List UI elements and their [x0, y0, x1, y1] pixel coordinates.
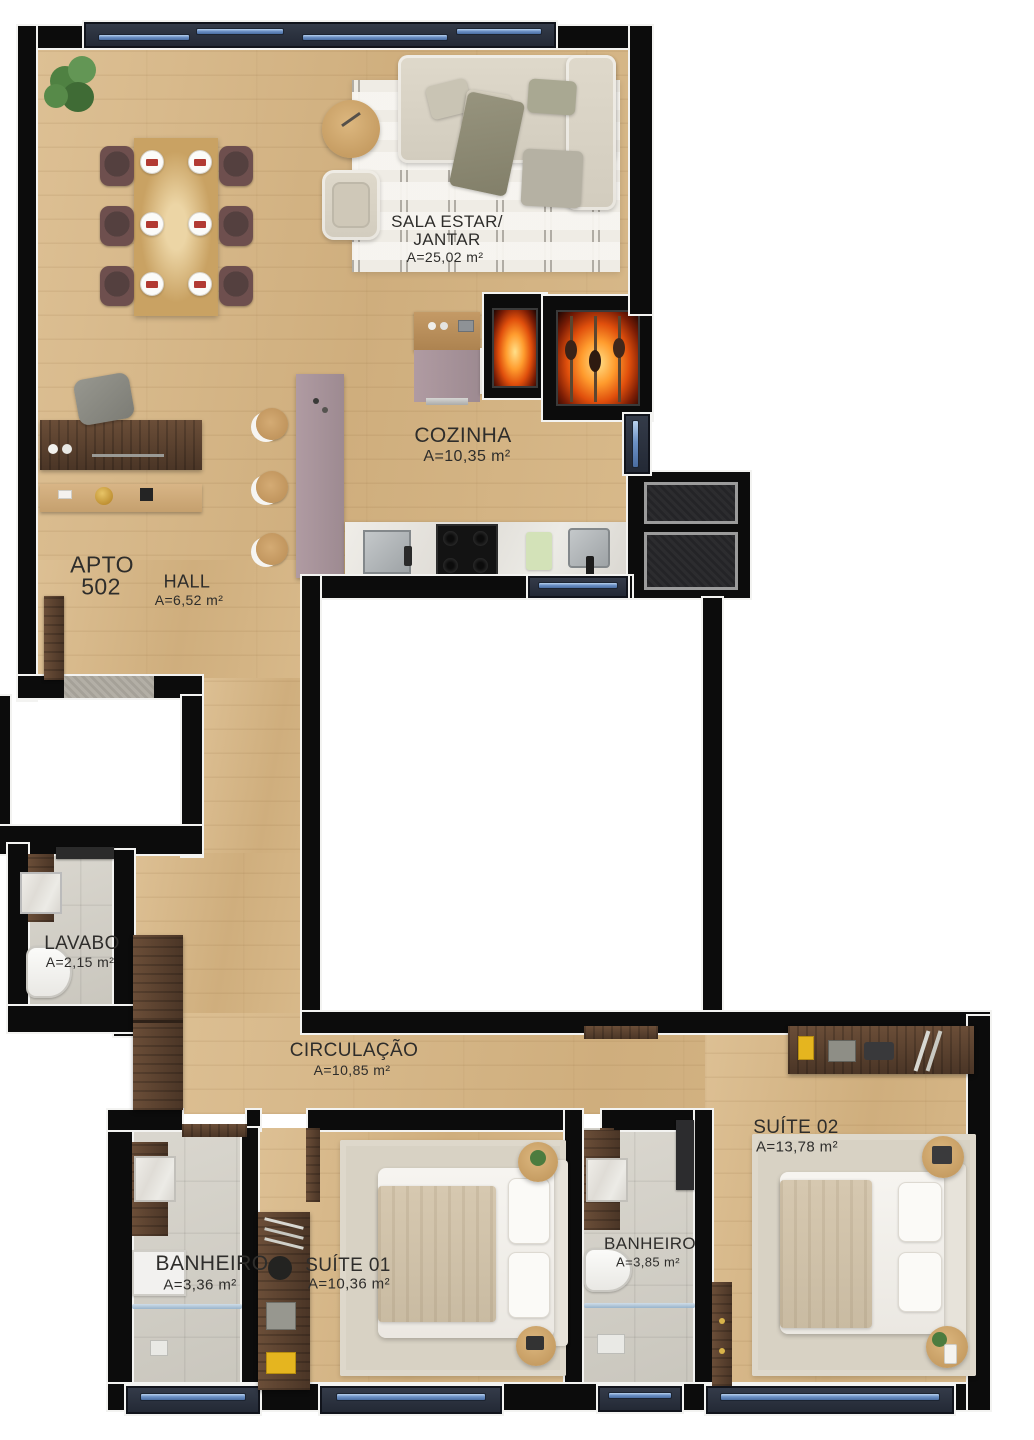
suite2-blanket [780, 1180, 872, 1328]
fireplace-fire [492, 308, 538, 388]
entry-doormat [64, 676, 154, 698]
place-setting [188, 150, 212, 174]
banheiro2-sink [586, 1158, 628, 1202]
room-area-sala: A=25,02 m² [407, 249, 484, 265]
desk-chair [72, 371, 135, 426]
gold-bowl [95, 487, 113, 505]
window-glass [196, 28, 284, 35]
wardrobe-box [266, 1302, 296, 1330]
room-area-suite2: A=13,78 m² [756, 1139, 838, 1156]
dining-chair [100, 266, 134, 306]
floor-plan: SALA ESTAR/ JANTAR A=25,02 m² COZINHA A=… [0, 0, 1034, 1440]
sofa-pillow [527, 78, 577, 115]
place-setting [140, 150, 164, 174]
wall [302, 576, 320, 1032]
cabinet-divider [133, 1020, 183, 1023]
kitchen-cabinet-top [414, 312, 480, 352]
place-setting [140, 272, 164, 296]
shelf-camera [864, 1042, 894, 1060]
window-glass [140, 1393, 246, 1401]
desk-cup [62, 444, 72, 454]
room-label-hall: HALL [164, 572, 211, 593]
nightstand-phone [944, 1344, 957, 1364]
window-glass [98, 34, 190, 41]
window-glass [456, 28, 542, 35]
nightstand-book [526, 1336, 544, 1350]
room-area-hall: A=6,52 m² [155, 592, 224, 608]
suite1-pillow [508, 1178, 550, 1244]
room-label-banheiro2: BANHEIRO [604, 1234, 696, 1254]
shaker [428, 322, 436, 330]
desk-cup [48, 444, 58, 454]
bar-stool [256, 533, 288, 565]
appliance-panel [644, 482, 738, 524]
grill-meat [589, 350, 601, 372]
window-glass [336, 1393, 486, 1401]
bar-stool [256, 471, 288, 503]
dining-chair [100, 146, 134, 186]
grill-meat [613, 338, 625, 358]
grill-meat [565, 340, 577, 360]
banheiro2-window [598, 1386, 682, 1412]
shower-column [676, 1120, 694, 1190]
island-decor [313, 398, 319, 404]
wall [247, 1110, 260, 1130]
shelf-box [828, 1040, 856, 1062]
room-label-sala: SALA ESTAR/ [391, 212, 503, 232]
place-setting [140, 212, 164, 236]
suite2-slim-cabinet [712, 1282, 732, 1386]
burner [473, 558, 488, 573]
counter-faucet [586, 556, 594, 578]
sideboard-frame [140, 488, 153, 501]
cabinet-knob [719, 1318, 725, 1324]
window-glass [302, 34, 448, 41]
shower-glass [132, 1304, 242, 1309]
room-area-circulacao: A=10,85 m² [314, 1062, 391, 1078]
lavabo-shelf [56, 847, 114, 859]
dining-chair [100, 206, 134, 246]
wall [8, 1006, 134, 1032]
nightstand-plant-icon [530, 1150, 546, 1166]
wall [108, 1110, 132, 1410]
shaker [440, 322, 448, 330]
dining-chair [219, 266, 253, 306]
dining-chair [219, 206, 253, 246]
burner [473, 531, 488, 546]
suite1-pillow [508, 1252, 550, 1318]
suite1-blanket [378, 1186, 496, 1322]
room-label-sala-2: JANTAR [413, 230, 480, 250]
wall [703, 598, 722, 1032]
shower-glass [584, 1303, 695, 1308]
wardrobe-pot [268, 1256, 292, 1280]
place-setting [188, 212, 212, 236]
sink-faucet [404, 546, 412, 566]
banheiro1-sink [134, 1156, 176, 1202]
window-glass [632, 420, 639, 468]
wardrobe-yellow-drawer [266, 1352, 296, 1374]
bar-stool [256, 408, 288, 440]
grill-skewer [618, 316, 621, 402]
room-label-suite1: SUÍTE 01 [305, 1255, 391, 1277]
suite1-headboard [552, 1160, 568, 1346]
cabinet-knob [719, 1348, 725, 1354]
wall [108, 1110, 182, 1130]
burner [443, 531, 458, 546]
banheiro1-door-leaf [182, 1124, 247, 1137]
coffee-table [322, 100, 380, 158]
burner [443, 558, 458, 573]
wall [630, 26, 652, 314]
wall [308, 1110, 578, 1130]
room-area-banheiro2: A=3,85 m² [616, 1255, 680, 1270]
nightstand-camera [932, 1146, 952, 1164]
lavabo-sink [20, 872, 62, 914]
kitchen-cabinet [414, 350, 480, 402]
apartment-number: 502 [81, 574, 121, 601]
desk-keyboard [92, 454, 164, 457]
room-area-cozinha: A=10,35 m² [423, 448, 510, 466]
shower-drain [597, 1334, 625, 1354]
entry-door-leaf [44, 596, 64, 680]
window-glass [720, 1393, 940, 1401]
room-label-cozinha: COZINHA [414, 424, 511, 448]
suite1-door-leaf [306, 1128, 320, 1202]
room-area-lavabo: A=2,15 m² [46, 954, 115, 970]
room-label-circulacao: CIRCULAÇÃO [290, 1040, 419, 1062]
room-label-suite2: SUÍTE 02 [753, 1117, 839, 1139]
window-glass [538, 582, 618, 589]
ottoman [521, 148, 584, 208]
shelf-yellow-book [798, 1036, 814, 1060]
room-label-banheiro1: BANHEIRO [156, 1252, 269, 1276]
suite2-door-leaf [584, 1026, 658, 1039]
suite2-pillow [898, 1252, 942, 1312]
cabinet-handle [426, 398, 468, 405]
suite2-pillow [898, 1182, 942, 1242]
room-area-suite1: A=10,36 m² [308, 1276, 390, 1293]
kitchen-small-appliance [458, 320, 474, 332]
island-decor [322, 407, 328, 413]
dish-towel [526, 532, 552, 570]
appliance-panel [644, 532, 738, 590]
window-glass [608, 1392, 672, 1399]
kitchen-island [296, 374, 344, 578]
shower-drain [150, 1340, 168, 1356]
wall [18, 26, 36, 700]
dining-chair [219, 146, 253, 186]
plant-icon [44, 56, 100, 118]
wall [695, 1110, 712, 1410]
suite2-headboard [944, 1164, 966, 1342]
wall [0, 696, 10, 832]
place-setting [188, 272, 212, 296]
room-area-banheiro1: A=3,36 m² [163, 1277, 236, 1294]
sideboard-decor [58, 490, 72, 499]
armchair-seat [332, 182, 370, 228]
room-label-lavabo: LAVABO [44, 933, 120, 955]
